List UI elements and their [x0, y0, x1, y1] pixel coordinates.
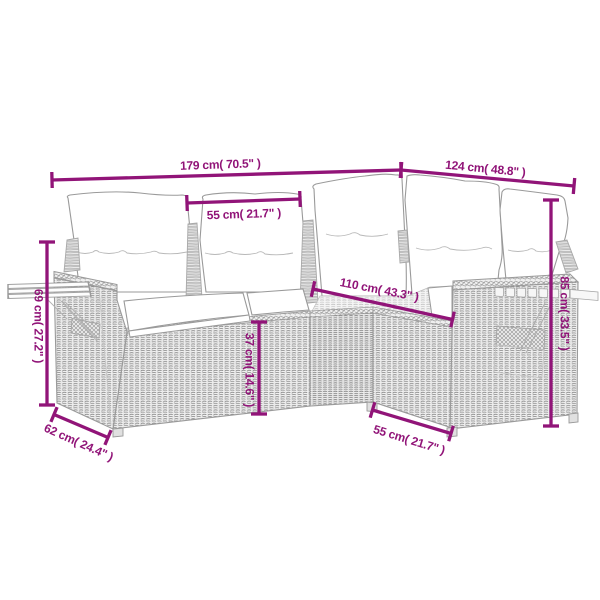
svg-text:179 cm( 70.5" ): 179 cm( 70.5" )	[180, 156, 261, 173]
svg-text:85 cm( 33.5" ): 85 cm( 33.5" )	[558, 276, 572, 350]
svg-text:69 cm( 27.2" ): 69 cm( 27.2" )	[32, 289, 46, 363]
svg-text:55 cm( 21.7" ): 55 cm( 21.7" )	[207, 206, 282, 223]
svg-text:37 cm( 14.6" ): 37 cm( 14.6" )	[243, 333, 257, 407]
